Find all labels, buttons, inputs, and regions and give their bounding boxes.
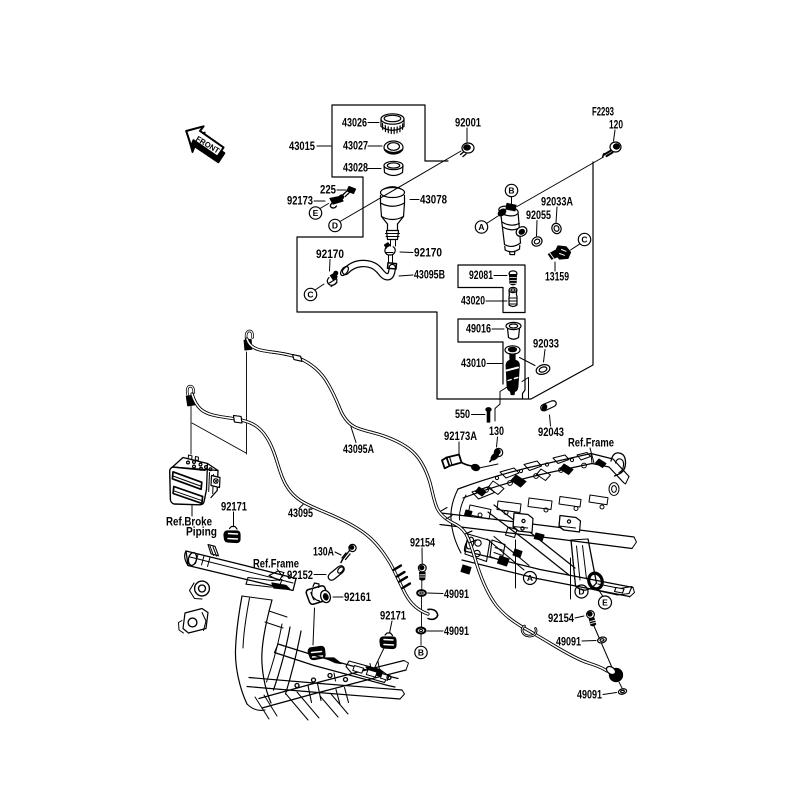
svg-text:13159: 13159 (545, 272, 569, 284)
svg-text:92043: 92043 (538, 427, 564, 439)
svg-text:B: B (418, 648, 424, 658)
svg-text:B: B (508, 186, 514, 196)
svg-text:E: E (602, 598, 608, 608)
svg-text:Piping: Piping (186, 527, 217, 539)
svg-text:Ref.Frame: Ref.Frame (568, 438, 614, 450)
svg-text:F2293: F2293 (592, 107, 614, 119)
svg-text:D: D (332, 221, 338, 231)
svg-text:43015: 43015 (289, 141, 315, 153)
svg-text:92161: 92161 (344, 592, 372, 604)
svg-text:C: C (307, 290, 313, 300)
svg-text:43078: 43078 (420, 195, 448, 207)
svg-text:92173A: 92173A (444, 431, 477, 443)
svg-text:49091: 49091 (556, 637, 581, 649)
svg-text:49091: 49091 (444, 589, 469, 601)
svg-text:49091: 49091 (577, 690, 602, 702)
svg-text:92001: 92001 (455, 118, 481, 130)
svg-text:130A: 130A (313, 547, 334, 559)
svg-text:92154: 92154 (548, 613, 574, 625)
svg-text:43026: 43026 (342, 118, 367, 130)
svg-text:C: C (581, 235, 587, 245)
svg-text:92081: 92081 (469, 270, 493, 282)
svg-text:130: 130 (489, 426, 504, 438)
svg-text:43095A: 43095A (343, 444, 374, 456)
svg-text:49016: 49016 (466, 324, 491, 336)
svg-text:43027: 43027 (343, 141, 368, 153)
svg-text:43095B: 43095B (414, 270, 445, 282)
svg-text:92173: 92173 (287, 196, 313, 208)
svg-text:43020: 43020 (461, 296, 485, 308)
svg-text:92055: 92055 (526, 210, 551, 222)
svg-text:92171: 92171 (380, 611, 406, 623)
svg-text:A: A (527, 573, 533, 583)
svg-text:92171: 92171 (221, 502, 247, 514)
svg-text:92154: 92154 (410, 538, 435, 550)
svg-text:A: A (478, 222, 484, 232)
svg-text:120: 120 (609, 120, 623, 132)
svg-text:92152: 92152 (287, 570, 313, 582)
svg-text:43028: 43028 (343, 163, 368, 175)
svg-text:D: D (578, 587, 584, 597)
svg-text:92170: 92170 (414, 248, 442, 260)
svg-text:550: 550 (455, 409, 470, 421)
svg-text:43095: 43095 (288, 508, 313, 520)
svg-text:E: E (313, 208, 319, 218)
svg-text:49091: 49091 (444, 626, 469, 638)
svg-text:43010: 43010 (461, 358, 486, 370)
svg-text:92033: 92033 (533, 339, 559, 351)
svg-text:225: 225 (320, 185, 337, 197)
